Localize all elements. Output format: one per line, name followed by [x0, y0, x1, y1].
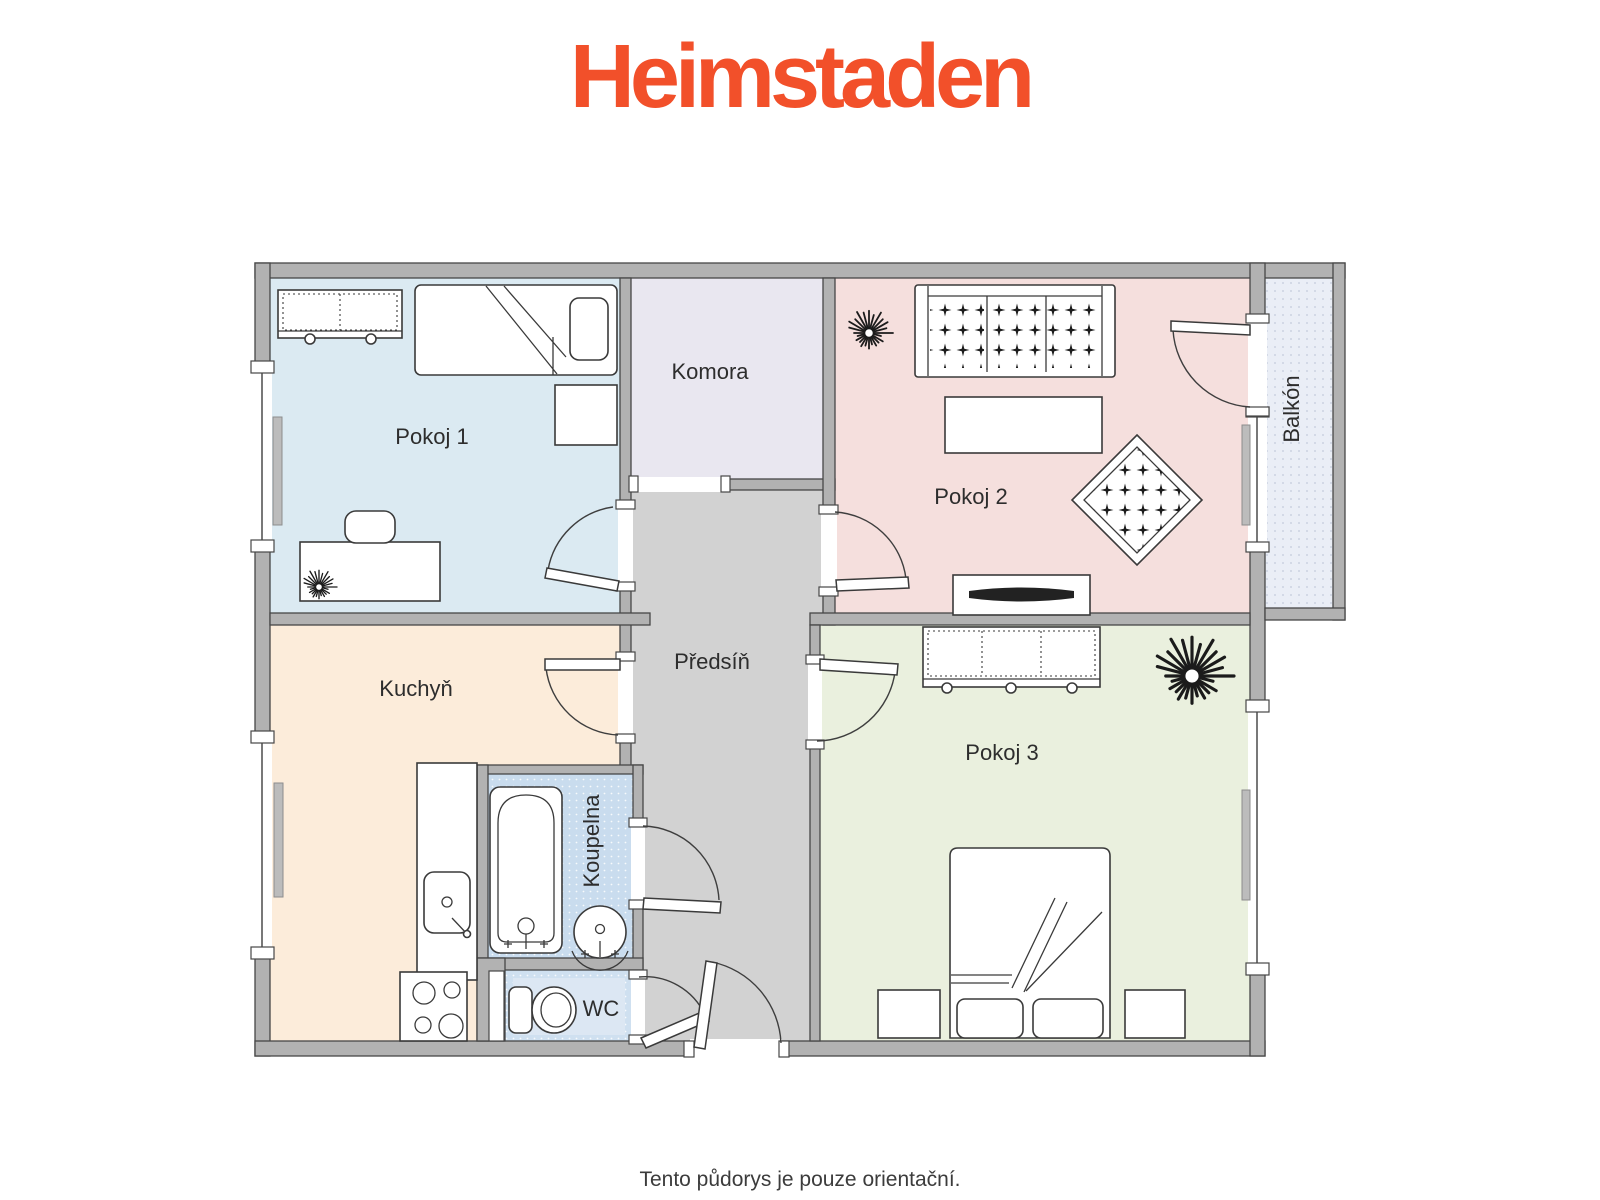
wardrobe: [923, 627, 1100, 693]
floor-plan: Pokoj 1 Komora Pokoj 2 Balkón Kuchyň Pře…: [0, 0, 1600, 1200]
room-floor-predsin: [631, 490, 823, 1041]
nightstand: [878, 990, 940, 1038]
wall-top: [255, 263, 1345, 278]
radiator-pokoj1: [273, 417, 282, 525]
coffee-table: [945, 397, 1102, 453]
tv-stand: [953, 575, 1090, 615]
window-kuchyn: [251, 731, 274, 959]
bathtub: [490, 787, 562, 953]
room-label-kuchyn: Kuchyň: [379, 676, 452, 701]
double-bed: [950, 848, 1110, 1038]
room-label-wc: WC: [583, 996, 620, 1021]
wall-balcony-right: [1333, 263, 1345, 620]
nightstand: [1125, 990, 1185, 1038]
radiator-kuchyn: [274, 783, 283, 897]
room-label-balkon: Balkón: [1279, 375, 1304, 442]
wardrobe: [278, 290, 402, 344]
room-label-koupelna: Koupelna: [579, 794, 604, 888]
wall-bath-top: [477, 765, 643, 774]
room-label-pokoj1: Pokoj 1: [395, 424, 468, 449]
disclaimer-text: Tento půdorys je pouze orientační.: [0, 1168, 1600, 1192]
wall-pokoj1-kitchen: [270, 613, 650, 625]
room-label-komora: Komora: [671, 359, 749, 384]
sofa: [915, 285, 1115, 377]
single-bed: [415, 285, 617, 375]
nightstand: [555, 385, 617, 445]
window-pokoj1: [251, 361, 274, 552]
room-label-pokoj3: Pokoj 3: [965, 740, 1038, 765]
radiator-pokoj3: [1242, 790, 1250, 900]
tv-icon: [969, 588, 1074, 602]
kitchen-sink: [424, 872, 471, 938]
room-label-pokoj2: Pokoj 2: [934, 484, 1007, 509]
toilet: [509, 987, 576, 1033]
radiator-pokoj2: [1242, 425, 1250, 525]
door-komora: [629, 476, 730, 492]
floorplan-page: Heimstaden: [0, 0, 1600, 1200]
wall-balcony-bottom: [1265, 608, 1345, 620]
utility-shaft: [489, 971, 504, 1041]
stove: [400, 972, 467, 1041]
chair: [345, 511, 395, 543]
room-label-predsin: Předsíň: [674, 649, 750, 674]
